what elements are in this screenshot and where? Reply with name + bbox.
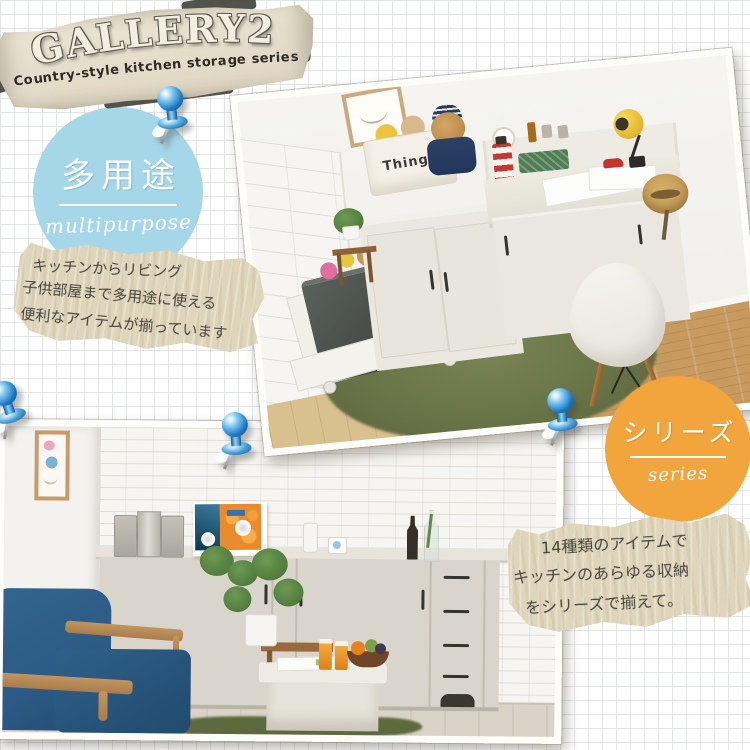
red-toy-car: [603, 158, 624, 169]
cordless-phone: [303, 523, 318, 553]
stereo-speaker: [114, 515, 137, 557]
multipurpose-badge-jp: 多用途: [55, 148, 181, 197]
multipurpose-note: キッチンからリビング 子供部屋まで多用途に使える 便利なアイテムが揃っています: [8, 237, 267, 358]
art-smile: [43, 472, 57, 484]
plum-fruit: [375, 643, 386, 654]
orange-juice: [335, 641, 348, 670]
sofa-leg: [98, 691, 107, 721]
plant-stand-leg: [366, 250, 373, 282]
orange-fruit: [351, 641, 365, 655]
drawer-unit-edge: [482, 560, 485, 708]
pushpin-icon: [217, 411, 255, 471]
orange-juice: [319, 639, 332, 670]
plant-stand-leg: [337, 253, 344, 285]
artwork-label: [227, 510, 245, 516]
door-handle: [421, 590, 424, 610]
door-handle: [504, 236, 509, 256]
hat-band: [650, 188, 681, 200]
drawer-handle: [443, 675, 469, 678]
stereo-deck: [137, 511, 161, 557]
series-badge-jp: シリーズ: [619, 413, 738, 449]
art-blue-dot: [46, 456, 58, 468]
plant-stand: [331, 232, 380, 286]
small-clock: [328, 537, 347, 554]
small-jar: [557, 125, 568, 139]
cd-disc: [201, 532, 215, 546]
drawer-handle: [443, 610, 469, 613]
clock-face: [333, 541, 341, 549]
wall-picture-frame: [34, 430, 70, 500]
series-badge-en: series: [648, 463, 709, 486]
plant-pot: [342, 225, 360, 241]
drawer-handle: [444, 576, 470, 579]
small-jar: [541, 124, 552, 138]
lamp-clamp: [629, 156, 646, 168]
door-handle: [264, 584, 267, 604]
cd-disc: [235, 520, 251, 536]
coffee-table-front: [266, 682, 378, 731]
monstera-leaf: [223, 586, 251, 612]
door-seam: [428, 560, 431, 708]
pushpin-icon: [542, 386, 582, 447]
pin-head: [156, 85, 184, 113]
badge-underline: [630, 456, 726, 458]
monstera-leaf: [273, 578, 303, 606]
orange-artwork: [193, 502, 267, 557]
monstera-leaf: [252, 548, 288, 580]
pin-head: [546, 387, 574, 415]
door-handle: [638, 224, 643, 244]
drawer-handle: [443, 644, 469, 647]
white-plant-pot: [245, 614, 277, 646]
badge-underline: [59, 204, 177, 206]
promo-page: Things: [0, 0, 750, 750]
teddy-bear-body: [426, 136, 477, 176]
multipurpose-badge-en: multipurpose: [44, 209, 192, 238]
stereo-speaker: [161, 515, 184, 557]
art-pink-dot: [44, 440, 55, 450]
picture-art: [357, 99, 389, 126]
lighthouse-cap: [495, 136, 507, 145]
series-badge: シリーズ series: [605, 376, 750, 522]
pushpin-icon: [0, 376, 34, 442]
living-room-scene: [2, 426, 557, 737]
pushpin-icon: [152, 84, 192, 145]
photo-living-room: [0, 419, 564, 744]
small-bottle: [527, 122, 537, 143]
pin-head: [221, 411, 249, 438]
